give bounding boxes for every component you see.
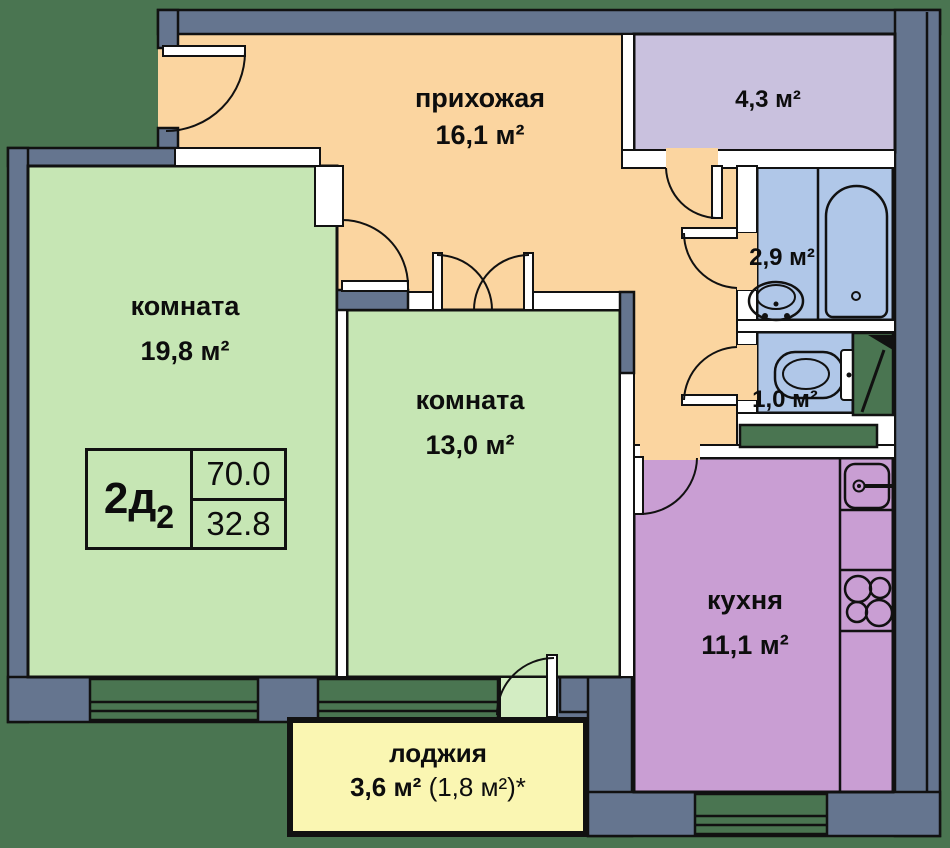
hallway-area: 16,1 м² (350, 117, 610, 154)
floor-plan: прихожая 16,1 м² комната 19,8 м² комната… (0, 0, 950, 848)
room-2-name: комната (355, 382, 585, 419)
kitchen-label: кухня 11,1 м² (635, 582, 855, 664)
window-kitchen (695, 794, 827, 834)
loggia-area-note: (1,8 м²)* (421, 772, 526, 802)
loggia-name: лоджия (296, 736, 580, 770)
room-1-area: 19,8 м² (55, 333, 315, 370)
duct (740, 425, 877, 447)
hallway-name: прихожая (350, 80, 610, 117)
loggia-area-line: 3,6 м² (1,8 м²)* (296, 770, 580, 804)
bathroom-label: 2,9 м² (702, 244, 862, 272)
apartment-type: 2д2 (88, 451, 193, 547)
loggia-label: лоджия 3,6 м² (1,8 м²)* (296, 736, 580, 804)
room-living-1-floor (28, 166, 337, 677)
room-living-2-floor (347, 310, 620, 677)
apartment-areas: 70.0 32.8 (193, 451, 284, 547)
hallway-label: прихожая 16,1 м² (350, 80, 610, 154)
room-2-area: 13,0 м² (355, 427, 585, 464)
room-1-label: комната 19,8 м² (55, 288, 315, 370)
kitchen-area: 11,1 м² (635, 627, 855, 664)
apartment-type-main: 2д (104, 474, 156, 524)
living-area-value: 32.8 (193, 501, 284, 548)
kitchen-name: кухня (635, 582, 855, 619)
total-area-value: 70.0 (193, 451, 284, 501)
window-room-2 (318, 679, 498, 720)
apartment-type-index: 2 (156, 501, 174, 547)
room-2-label: комната 13,0 м² (355, 382, 585, 464)
wc-label: 1,0 м² (705, 386, 865, 414)
apartment-badge: 2д2 70.0 32.8 (85, 448, 287, 550)
window-room-1 (90, 679, 258, 720)
loggia-area: 3,6 м² (350, 772, 421, 802)
room-1-name: комната (55, 288, 315, 325)
wardrobe-label: 4,3 м² (658, 86, 878, 114)
